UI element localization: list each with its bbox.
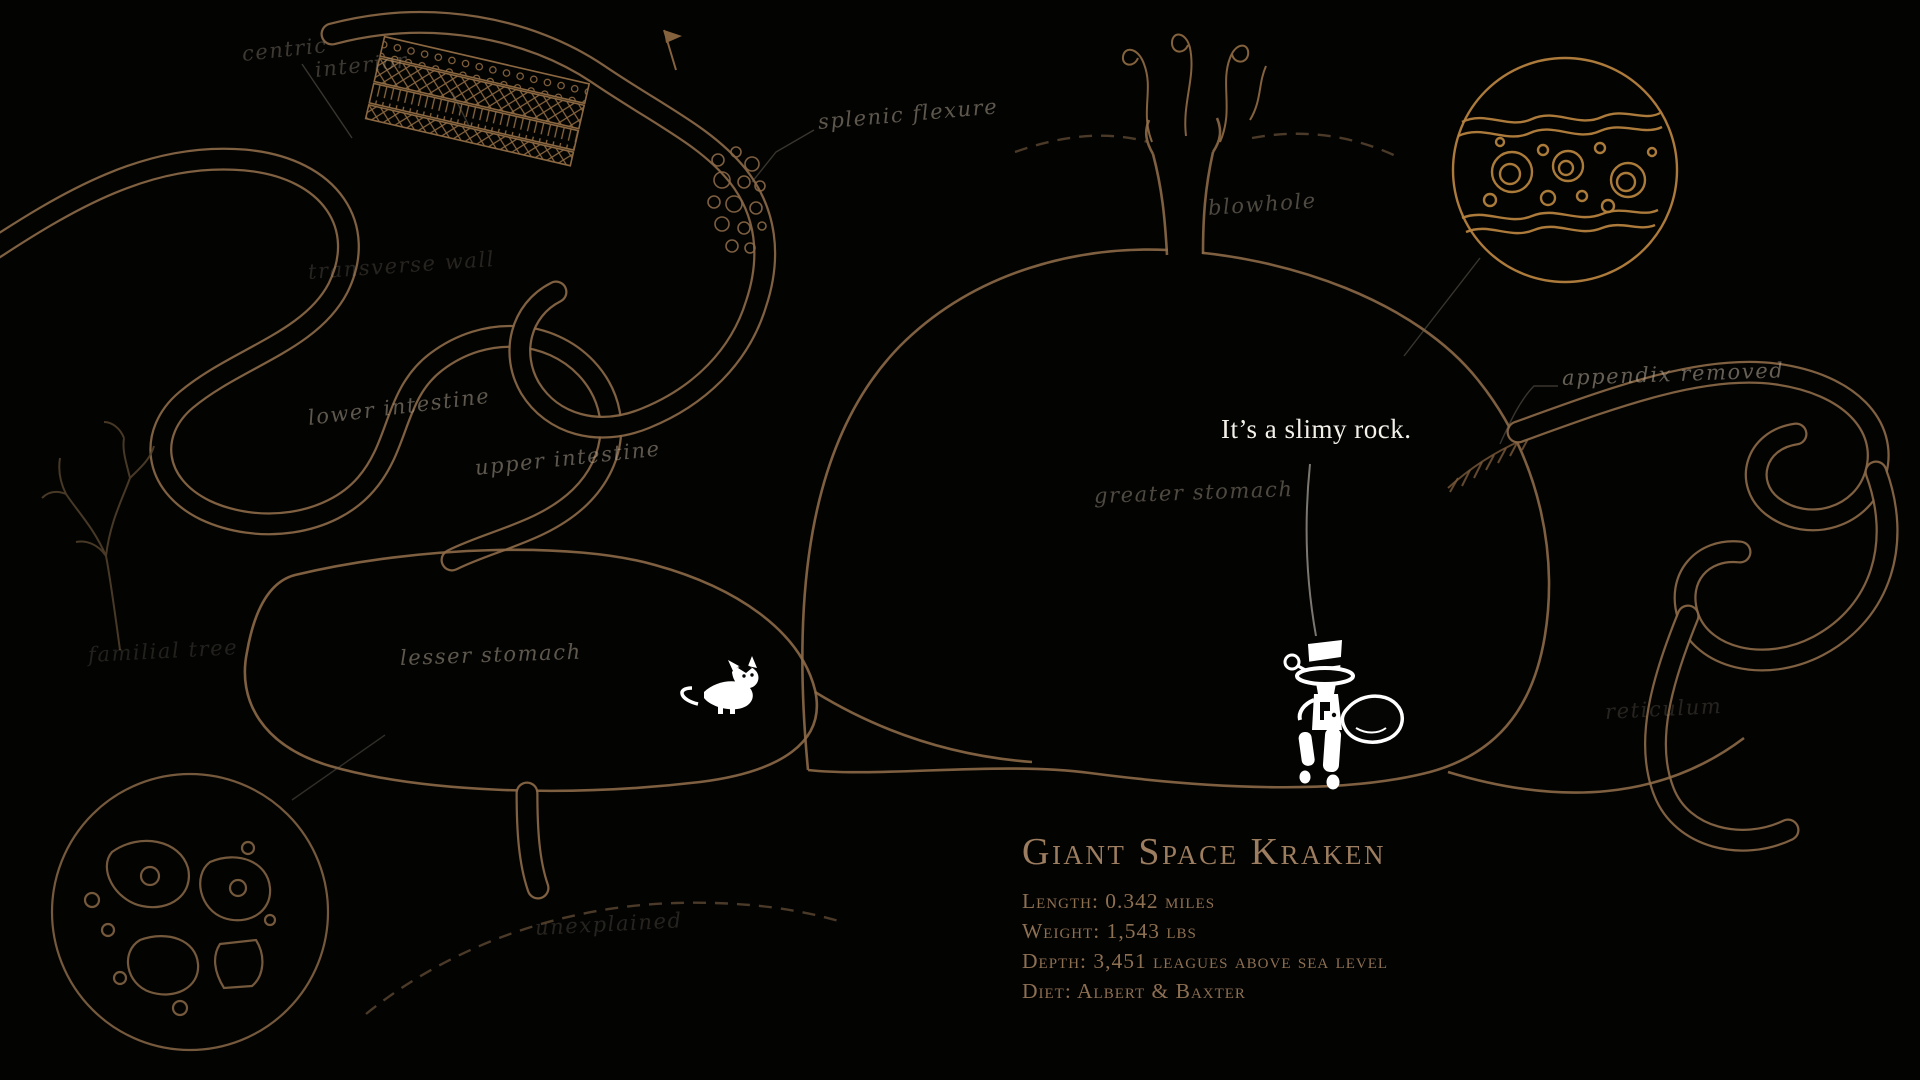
flag-marker-icon	[664, 30, 682, 70]
blowhole-tube	[1146, 118, 1220, 255]
cat-sprite[interactable]	[682, 656, 758, 714]
microscope-inset-bottom-left-icon	[52, 735, 385, 1050]
creature-stat-weight: Weight: 1,543 lbs	[1022, 916, 1388, 946]
slimy-rock-icon[interactable]	[1342, 696, 1402, 742]
creature-stat-length: Length: 0.342 miles	[1022, 886, 1388, 916]
steam-squiggles	[1123, 35, 1266, 142]
intestine-tubes-right	[1448, 372, 1887, 840]
dashed-shoulder-left	[1015, 136, 1148, 152]
dashed-shoulder-right	[1252, 134, 1400, 158]
appendix-scar	[1448, 386, 1558, 492]
tree-branch-icon	[42, 422, 154, 650]
speech-leader-line	[1307, 464, 1316, 636]
creature-title: Giant Space Kraken	[1022, 830, 1388, 874]
creature-stat-diet: Diet: Albert & Baxter	[1022, 976, 1388, 1006]
kraken-anatomy-map-screen: centric interior splenic flexure blowhol…	[0, 0, 1920, 1080]
kraken-body-outline	[802, 250, 1549, 788]
creature-stat-depth: Depth: 3,451 leagues above sea level	[1022, 946, 1388, 976]
kraken-map-drawing	[0, 0, 1920, 1080]
lesser-stomach-outline	[245, 550, 817, 791]
creature-info-panel: Giant Space Kraken Length: 0.342 miles W…	[1022, 830, 1388, 1006]
bottom-tube	[366, 793, 842, 1014]
stomach-body-connector	[815, 692, 1032, 762]
speech-text: It’s a slimy rock.	[1221, 414, 1411, 445]
detective-sprite[interactable]	[1285, 640, 1402, 790]
microscope-inset-top-right-icon	[1404, 58, 1677, 356]
